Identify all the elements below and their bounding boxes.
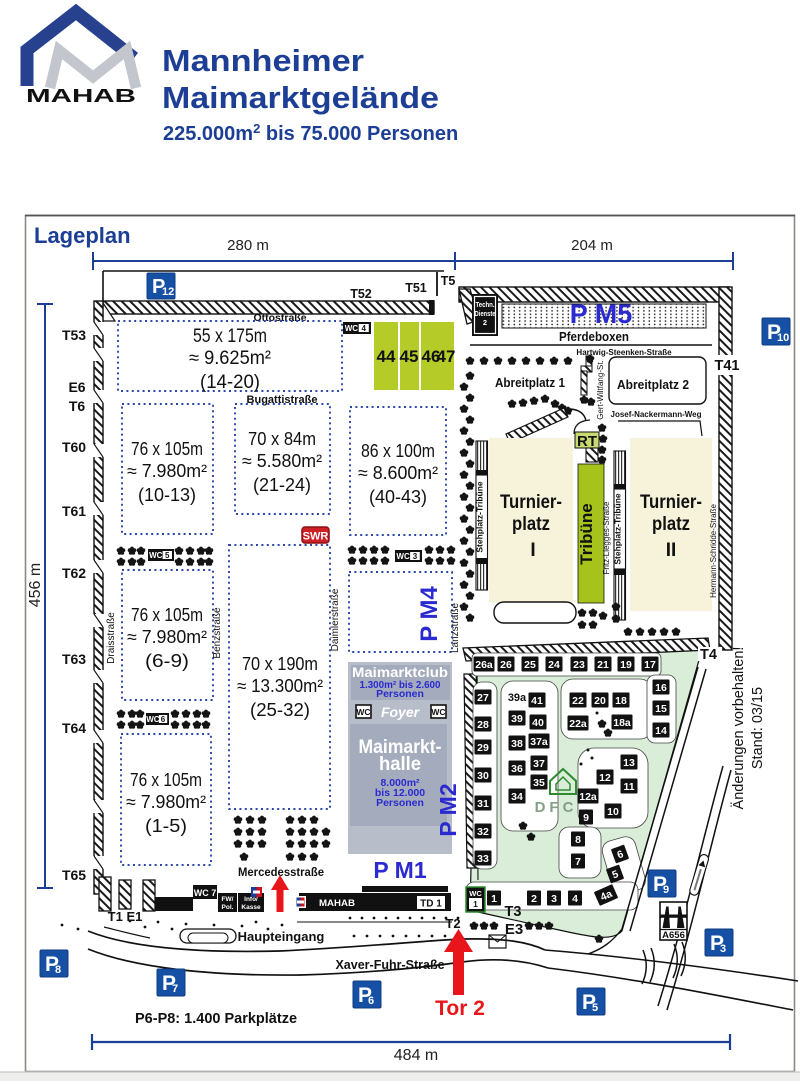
svg-text:10: 10 bbox=[607, 806, 619, 818]
svg-text:5: 5 bbox=[592, 1002, 598, 1014]
svg-text:Gert-Wiltfang-St.: Gert-Wiltfang-St. bbox=[596, 360, 605, 420]
svg-text:30: 30 bbox=[477, 770, 489, 782]
svg-text:33: 33 bbox=[477, 853, 489, 865]
svg-text:27: 27 bbox=[477, 692, 489, 704]
svg-text:14: 14 bbox=[655, 725, 667, 737]
svg-text:II: II bbox=[666, 540, 677, 561]
svg-text:47: 47 bbox=[437, 347, 456, 366]
svg-text:280 m: 280 m bbox=[227, 237, 269, 254]
svg-text:21: 21 bbox=[597, 659, 609, 671]
svg-text:29: 29 bbox=[477, 742, 489, 754]
svg-text:Xaver-Fuhr-Straße: Xaver-Fuhr-Straße bbox=[335, 958, 444, 972]
svg-text:E6: E6 bbox=[68, 379, 85, 395]
svg-text:9: 9 bbox=[583, 812, 589, 824]
svg-text:7: 7 bbox=[172, 983, 178, 995]
svg-text:MAHAB: MAHAB bbox=[319, 898, 355, 909]
svg-text:(6-9): (6-9) bbox=[145, 651, 189, 671]
svg-text:16: 16 bbox=[655, 682, 667, 694]
svg-text:22a: 22a bbox=[569, 718, 587, 730]
svg-text:32: 32 bbox=[477, 826, 489, 838]
svg-text:P M5: P M5 bbox=[570, 299, 633, 329]
svg-text:24: 24 bbox=[548, 659, 560, 671]
svg-text:WC: WC bbox=[469, 889, 482, 898]
svg-text:Ottostraße: Ottostraße bbox=[253, 312, 306, 324]
svg-text:T51: T51 bbox=[405, 281, 427, 295]
svg-text:8: 8 bbox=[575, 834, 581, 846]
svg-text:204 m: 204 m bbox=[571, 237, 613, 254]
svg-text:Fritz-Liegges-Straße: Fritz-Liegges-Straße bbox=[602, 501, 611, 574]
svg-text:38: 38 bbox=[511, 738, 523, 750]
svg-text:36: 36 bbox=[511, 763, 523, 775]
svg-text:Foyer: Foyer bbox=[381, 704, 421, 720]
svg-text:Info/: Info/ bbox=[244, 896, 258, 903]
svg-text:15: 15 bbox=[655, 703, 667, 715]
svg-text:76 x 105m: 76 x 105m bbox=[130, 770, 202, 790]
svg-text:(40-43): (40-43) bbox=[369, 487, 427, 507]
svg-text:20: 20 bbox=[594, 695, 606, 707]
svg-text:FW/: FW/ bbox=[222, 896, 234, 903]
svg-text:7: 7 bbox=[575, 856, 581, 868]
svg-text:37: 37 bbox=[533, 758, 545, 770]
svg-text:Stehplatz-Tribüne: Stehplatz-Tribüne bbox=[475, 481, 485, 553]
svg-text:Hermann-Schridde-Straße: Hermann-Schridde-Straße bbox=[709, 504, 718, 598]
svg-text:19: 19 bbox=[620, 659, 632, 671]
svg-text:45: 45 bbox=[400, 347, 419, 366]
svg-text:Personen: Personen bbox=[376, 688, 424, 700]
svg-text:Abreitplatz 2: Abreitplatz 2 bbox=[617, 377, 689, 392]
svg-text:10: 10 bbox=[777, 332, 789, 344]
svg-text:WC: WC bbox=[356, 707, 370, 717]
svg-text:1: 1 bbox=[491, 893, 497, 905]
svg-text:3: 3 bbox=[720, 943, 726, 955]
svg-text:2: 2 bbox=[531, 893, 537, 905]
svg-text:T3: T3 bbox=[505, 904, 522, 920]
svg-text:39: 39 bbox=[511, 713, 523, 725]
svg-text:(25-32): (25-32) bbox=[250, 700, 310, 720]
svg-text:44: 44 bbox=[377, 347, 396, 366]
svg-text:Turnier-: Turnier- bbox=[640, 492, 702, 513]
svg-text:Tor 2: Tor 2 bbox=[435, 997, 485, 1020]
svg-text:70 x 190m: 70 x 190m bbox=[242, 654, 318, 674]
svg-text:WC: WC bbox=[396, 552, 410, 561]
svg-text:Tribüne: Tribüne bbox=[577, 503, 596, 564]
svg-text:≈ 8.600m²: ≈ 8.600m² bbox=[358, 463, 438, 483]
svg-text:40: 40 bbox=[532, 717, 544, 729]
svg-text:≈ 9.625m²: ≈ 9.625m² bbox=[189, 348, 271, 369]
svg-text:SWR: SWR bbox=[303, 531, 329, 543]
svg-text:86 x 100m: 86 x 100m bbox=[361, 441, 435, 461]
svg-text:P M4: P M4 bbox=[416, 586, 443, 642]
svg-text:≈ 13.300m²: ≈ 13.300m² bbox=[237, 676, 323, 696]
svg-text:WC: WC bbox=[149, 551, 163, 560]
svg-text:3: 3 bbox=[413, 552, 418, 561]
svg-text:WC: WC bbox=[345, 324, 359, 333]
svg-text:70 x 84m: 70 x 84m bbox=[248, 429, 316, 449]
svg-text:≈ 7.980m²: ≈ 7.980m² bbox=[127, 461, 207, 481]
svg-text:31: 31 bbox=[477, 798, 489, 810]
svg-text:WC: WC bbox=[146, 715, 160, 724]
svg-text:Benzstraße: Benzstraße bbox=[212, 607, 223, 659]
svg-text:TD 1: TD 1 bbox=[420, 899, 442, 910]
svg-text:platz: platz bbox=[512, 514, 550, 535]
svg-text:Änderungen vorbehalten!: Änderungen vorbehalten! bbox=[730, 647, 747, 810]
svg-text:halle: halle bbox=[379, 754, 421, 775]
svg-text:76 x 105m: 76 x 105m bbox=[131, 605, 203, 625]
svg-text:22: 22 bbox=[572, 695, 584, 707]
svg-text:DFC: DFC bbox=[535, 799, 578, 816]
svg-text:T63: T63 bbox=[62, 651, 86, 667]
svg-text:≈ 7.980m²: ≈ 7.980m² bbox=[126, 792, 206, 812]
svg-text:Josef-Nackermann-Weg: Josef-Nackermann-Weg bbox=[611, 410, 702, 419]
svg-text:26: 26 bbox=[500, 659, 512, 671]
svg-text:37a: 37a bbox=[530, 736, 548, 748]
svg-text:Turnier-: Turnier- bbox=[500, 492, 562, 513]
svg-text:T41: T41 bbox=[715, 358, 740, 374]
svg-text:Techn.: Techn. bbox=[476, 300, 495, 309]
svg-text:Pferdeboxen: Pferdeboxen bbox=[559, 329, 629, 344]
svg-text:13: 13 bbox=[623, 757, 635, 769]
svg-text:WC: WC bbox=[431, 707, 445, 717]
svg-text:Personen: Personen bbox=[376, 797, 424, 809]
svg-text:12: 12 bbox=[162, 286, 174, 298]
svg-text:39a: 39a bbox=[508, 692, 527, 704]
svg-text:T1 E1: T1 E1 bbox=[108, 909, 143, 924]
svg-text:Draisstraße: Draisstraße bbox=[106, 612, 117, 664]
svg-text:6: 6 bbox=[368, 995, 374, 1007]
svg-text:Stand: 03/15: Stand: 03/15 bbox=[750, 687, 766, 769]
svg-text:Lageplan: Lageplan bbox=[34, 223, 131, 248]
svg-text:T64: T64 bbox=[62, 720, 86, 736]
svg-text:(21-24): (21-24) bbox=[253, 475, 311, 495]
svg-text:T52: T52 bbox=[350, 287, 372, 301]
svg-text:8: 8 bbox=[55, 964, 61, 976]
svg-text:T61: T61 bbox=[62, 503, 86, 519]
svg-text:12a: 12a bbox=[579, 791, 597, 803]
svg-text:I: I bbox=[530, 540, 535, 561]
svg-text:T65: T65 bbox=[62, 867, 86, 883]
svg-text:Haupteingang: Haupteingang bbox=[238, 929, 325, 944]
svg-text:3: 3 bbox=[551, 893, 557, 905]
svg-text:Maimarktclub: Maimarktclub bbox=[352, 665, 448, 680]
svg-text:4: 4 bbox=[572, 893, 578, 905]
svg-text:18a: 18a bbox=[613, 717, 631, 729]
svg-text:(1-5): (1-5) bbox=[145, 816, 187, 836]
svg-text:Pol.: Pol. bbox=[222, 904, 234, 911]
svg-text:12: 12 bbox=[599, 772, 611, 784]
svg-text:platz: platz bbox=[652, 514, 690, 535]
svg-text:Daimlerstraße: Daimlerstraße bbox=[330, 588, 341, 651]
svg-text:18: 18 bbox=[615, 695, 627, 707]
svg-text:5: 5 bbox=[165, 551, 170, 560]
svg-text:T5: T5 bbox=[441, 274, 456, 288]
svg-text:T6: T6 bbox=[69, 398, 86, 414]
svg-text:(10-13): (10-13) bbox=[138, 485, 196, 505]
svg-text:P M2: P M2 bbox=[435, 783, 461, 836]
svg-text:≈ 5.580m²: ≈ 5.580m² bbox=[242, 451, 322, 471]
svg-text:Maimarktgelände: Maimarktgelände bbox=[162, 80, 439, 115]
svg-text:25: 25 bbox=[524, 659, 536, 671]
svg-text:MAHAB: MAHAB bbox=[26, 85, 136, 106]
svg-text:P6-P8: 1.400 Parkplätze: P6-P8: 1.400 Parkplätze bbox=[135, 1011, 297, 1027]
svg-text:≈ 7.980m²: ≈ 7.980m² bbox=[127, 627, 207, 647]
svg-text:WC 7: WC 7 bbox=[194, 888, 217, 898]
svg-text:P M1: P M1 bbox=[373, 857, 426, 883]
svg-text:Lanzstraße: Lanzstraße bbox=[450, 603, 461, 653]
svg-text:26a: 26a bbox=[475, 659, 493, 671]
svg-text:(14-20): (14-20) bbox=[200, 372, 260, 393]
svg-text:41: 41 bbox=[531, 695, 543, 707]
svg-text:23: 23 bbox=[573, 659, 585, 671]
svg-text:Abreitplatz 1: Abreitplatz 1 bbox=[495, 375, 565, 390]
svg-text:4: 4 bbox=[361, 324, 366, 333]
svg-text:2: 2 bbox=[483, 318, 487, 327]
svg-text:225.000m2 bis 75.000 Personen: 225.000m2 bis 75.000 Personen bbox=[163, 121, 458, 145]
svg-text:456 m: 456 m bbox=[27, 563, 44, 607]
svg-text:E3: E3 bbox=[505, 921, 523, 938]
svg-text:6: 6 bbox=[161, 715, 166, 724]
svg-text:28: 28 bbox=[477, 719, 489, 731]
svg-text:T62: T62 bbox=[62, 565, 86, 581]
svg-text:76 x 105m: 76 x 105m bbox=[131, 439, 203, 459]
svg-text:17: 17 bbox=[644, 659, 656, 671]
svg-text:A656: A656 bbox=[662, 930, 685, 941]
svg-text:55 x 175m: 55 x 175m bbox=[193, 326, 267, 347]
svg-text:35: 35 bbox=[533, 777, 545, 789]
svg-text:34: 34 bbox=[511, 791, 523, 803]
svg-text:T53: T53 bbox=[62, 327, 86, 343]
svg-text:Stehplatz-Tribüne: Stehplatz-Tribüne bbox=[613, 493, 623, 565]
svg-text:Mannheimer: Mannheimer bbox=[162, 43, 364, 78]
svg-text:484 m: 484 m bbox=[394, 1047, 438, 1064]
svg-text:T4: T4 bbox=[700, 647, 717, 663]
svg-text:9: 9 bbox=[663, 884, 669, 896]
svg-text:Kasse: Kasse bbox=[241, 904, 261, 911]
svg-text:1: 1 bbox=[473, 899, 478, 909]
svg-text:Dienste: Dienste bbox=[475, 309, 496, 318]
svg-text:11: 11 bbox=[623, 781, 634, 793]
svg-text:T60: T60 bbox=[62, 439, 86, 455]
